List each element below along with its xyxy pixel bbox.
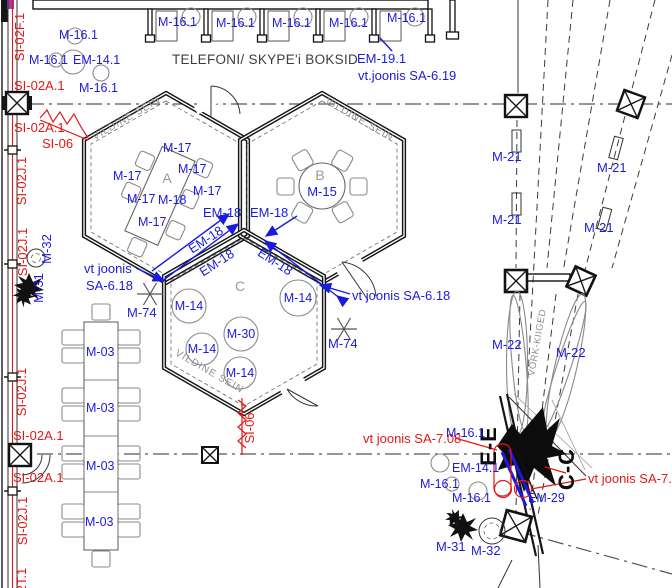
- booth-label: M-16.1: [59, 28, 98, 42]
- wall-code: SI-06: [242, 412, 257, 443]
- em18-label: EM-18: [203, 205, 241, 220]
- booth-label: M-16.1: [446, 426, 485, 440]
- column: [202, 447, 218, 463]
- chair-label: M-17: [138, 215, 167, 229]
- pendant-light-m21: [512, 130, 623, 231]
- booth-label: M-16.1: [79, 81, 118, 95]
- pouf-label: M-14: [175, 299, 204, 313]
- reference-note: SA-6.18: [86, 278, 133, 293]
- swing-beam: [527, 274, 570, 281]
- plant-label: M-31: [436, 539, 466, 554]
- booth-area-title: TELEFONI/ SKYPE'i BOKSID: [172, 52, 358, 67]
- em19-label: EM-19.1: [357, 51, 406, 66]
- pot-label: M-32: [39, 234, 54, 264]
- felt-wall-text: VILDINE SEIN: [323, 96, 395, 144]
- pouf-label: M-14: [284, 291, 313, 305]
- em19-reference: vt.joonis SA-6.19: [358, 68, 456, 83]
- floor-plan: M-16.1 M-16.1 M-16.1 M-16.1 M-16.1 M-16.…: [0, 0, 672, 588]
- wall-code: SI-02T.1: [14, 568, 29, 588]
- table-label: M-03: [86, 459, 115, 473]
- wall-code: SI-02A.1: [13, 428, 64, 443]
- column: [505, 270, 527, 292]
- reference-note: vt joonis: [84, 261, 132, 276]
- room-letter-b: B: [315, 167, 324, 183]
- column: [505, 95, 527, 117]
- wall-code: SI-02J.1: [15, 228, 30, 276]
- felt-wall-text: VILDINE SEIN: [91, 95, 163, 143]
- wall-code: SI-06: [42, 136, 73, 151]
- booth-label: M-16.1: [329, 16, 368, 30]
- floor-plan-canvas: M-16.1 M-16.1 M-16.1 M-16.1 M-16.1 M-16.…: [0, 0, 672, 588]
- em14-label: EM-14.1: [73, 53, 120, 67]
- booth-label: M-16.1: [29, 53, 68, 67]
- table-label: M-03: [86, 401, 115, 415]
- chair-label: M-17: [193, 184, 222, 198]
- booth-label: M-16.1: [387, 11, 426, 25]
- light-label: M-21: [584, 220, 614, 235]
- booth-label: M-16.1: [420, 477, 459, 491]
- table-label: M-15: [307, 184, 337, 199]
- light-label: M-21: [597, 160, 627, 175]
- table-label: M-18: [158, 193, 187, 207]
- em18-label: EM-18: [250, 205, 288, 220]
- plant-label: M-31: [31, 273, 46, 303]
- chair-label: M-17: [163, 141, 192, 155]
- column: [2, 92, 32, 114]
- em29-label: EM-29: [528, 491, 565, 505]
- booth-label: M-16.1: [272, 16, 311, 30]
- reference-note: vt joonis SA-7.08: [588, 471, 672, 486]
- light-label: M-21: [492, 212, 522, 227]
- wall-code: SI-02J.1: [14, 368, 29, 416]
- wall-code: SI-02J.1: [15, 497, 30, 545]
- reference-note: vt joonis SA-6.18: [352, 288, 450, 303]
- net-swing-m22: [506, 291, 593, 441]
- wall-code: SI-02A.1: [13, 470, 64, 485]
- table-label: M-30: [227, 327, 256, 341]
- wall-code: SI-02F.1: [12, 13, 27, 61]
- room-letter-a: A: [162, 170, 172, 186]
- star-label: M-74: [127, 305, 157, 320]
- em14-label: EM-14.1: [452, 461, 499, 475]
- pot-label: M-32: [471, 543, 501, 558]
- table-label: M-03: [86, 345, 115, 359]
- room-letter-c: C: [235, 278, 245, 294]
- star-label: M-74: [328, 336, 358, 351]
- booth-label: M-16.1: [452, 491, 491, 505]
- wall-code: SI-02A.1: [14, 78, 65, 93]
- booth-area: M-16.1 M-16.1 M-16.1 M-16.1 M-16.1 M-16.…: [29, 0, 459, 95]
- wall-code: SI-02J.1: [14, 157, 29, 205]
- swing-area-text: VÕRK-KIIGED: [526, 308, 549, 377]
- section-marker-cc: C-C: [554, 448, 579, 490]
- booth-label: M-16.1: [158, 15, 197, 29]
- chair-label: M-17: [127, 192, 156, 206]
- chair-label: M-17: [178, 162, 207, 176]
- chair-label: M-17: [113, 169, 142, 183]
- light-label: M-21: [492, 149, 522, 164]
- column: [617, 90, 645, 118]
- booth-label: M-16.1: [216, 16, 255, 30]
- column: [566, 266, 595, 295]
- column: [500, 510, 532, 542]
- table-label: M-03: [85, 515, 114, 529]
- pouf-label: M-14: [188, 342, 217, 356]
- swing-label: M-22: [556, 345, 586, 360]
- swing-label: M-22: [492, 337, 522, 352]
